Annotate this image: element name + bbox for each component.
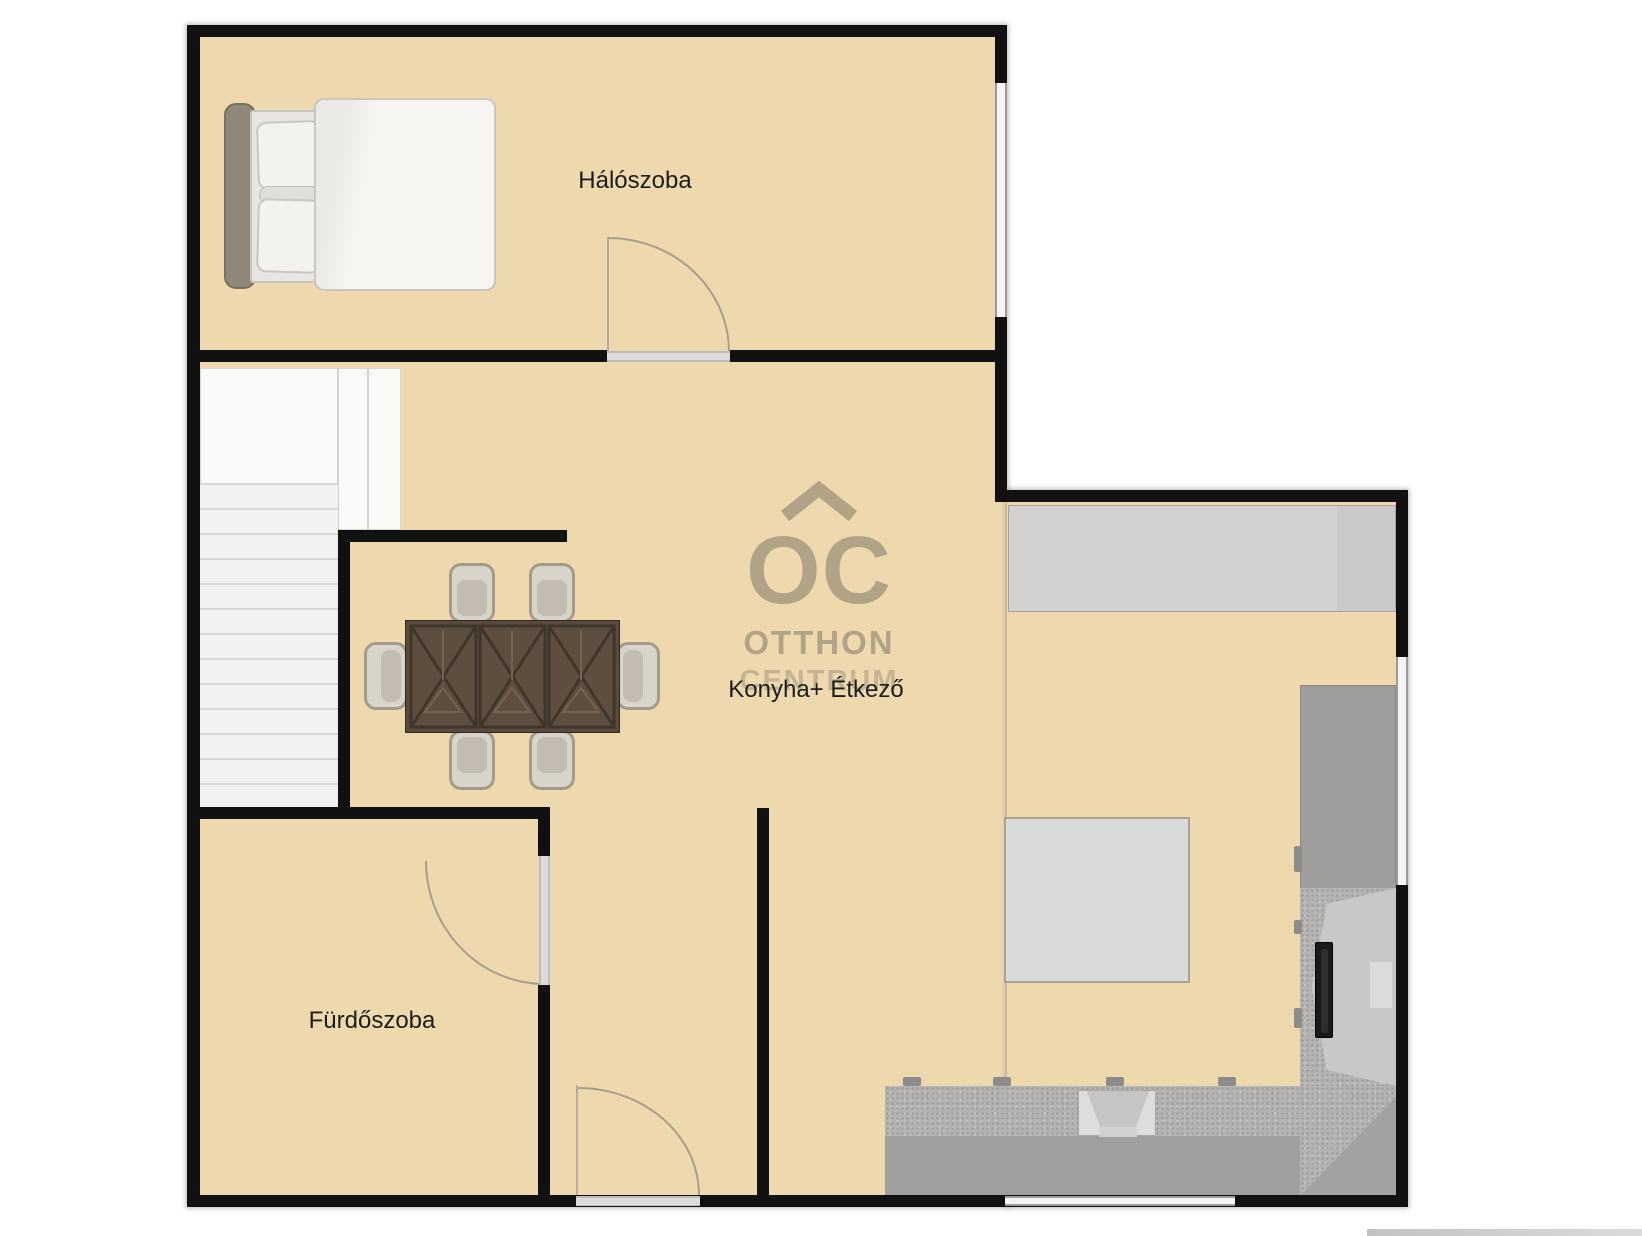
- dining-table-icon: [405, 620, 620, 733]
- watermark-letters: OC: [719, 524, 919, 618]
- kitchen-counter-corner: [1300, 1086, 1398, 1196]
- dining-chair: [449, 730, 495, 790]
- door-threshold-entry: [576, 1196, 700, 1206]
- wall-stairs: [338, 530, 350, 807]
- wall-bathroom-right: [538, 985, 550, 1207]
- watermark-line1: OTTHON: [719, 624, 919, 662]
- dining-chair: [364, 642, 408, 710]
- watermark-logo: OC OTTHON CENTRUM: [719, 480, 919, 698]
- window-kitchen-right: [1396, 657, 1408, 885]
- cabinet-handle: [1294, 1008, 1302, 1028]
- roof-chevron-icon: [777, 480, 861, 522]
- kitchen-counter-right-upper: [1300, 685, 1396, 889]
- room-label-kitchen-dining: Konyha+ Étkező: [691, 676, 941, 704]
- door-leaf-bathroom: [539, 856, 550, 985]
- wall-bedroom-bottom: [187, 350, 607, 362]
- counter-corner-shade: [1300, 1086, 1398, 1196]
- room-label-bathroom: Fürdőszoba: [272, 1007, 472, 1035]
- wall-partition-center: [757, 808, 769, 1207]
- room-label-bedroom: Hálószoba: [540, 167, 730, 195]
- floorplan-canvas: OC OTTHON CENTRUM Hálószoba Konyha+ Étke…: [0, 0, 1642, 1236]
- wall-stairs-stub: [338, 530, 567, 542]
- dining-chair: [449, 563, 495, 623]
- cabinet-highlight: [1370, 962, 1392, 1008]
- cabinet-handle: [1106, 1077, 1124, 1086]
- cabinet-handle: [1294, 920, 1302, 934]
- oven-icon: [1315, 942, 1333, 1038]
- dining-chair: [616, 642, 660, 710]
- wall-bedroom-bottom: [730, 350, 1007, 362]
- kitchen-counter-bottom-front: [885, 1136, 1300, 1196]
- bed-pillow: [256, 120, 322, 190]
- sink-icon: [1078, 1090, 1156, 1136]
- wall-bathroom-top: [187, 807, 550, 819]
- cabinet-handle: [1218, 1077, 1236, 1086]
- dining-chair: [529, 563, 575, 623]
- bed-duvet: [314, 98, 496, 291]
- kitchen-counter-top: [1008, 505, 1396, 612]
- cabinet-handle: [903, 1077, 921, 1086]
- door-threshold-bedroom: [607, 351, 730, 362]
- bottom-scroll-strip: [1367, 1229, 1642, 1236]
- staircase-icon: [200, 483, 338, 807]
- wall-outer-left: [187, 25, 200, 1207]
- window-bedroom: [995, 83, 1007, 317]
- wall-bathroom-right: [538, 807, 550, 856]
- cabinet-handle: [993, 1077, 1011, 1086]
- dining-chair: [529, 730, 575, 790]
- stair-landing-divider: [367, 369, 369, 529]
- wall-kitchen-top: [995, 490, 1408, 502]
- wall-outer-top: [187, 25, 1007, 37]
- window-kitchen-bottom: [1005, 1196, 1235, 1206]
- cabinet-handle: [1294, 846, 1302, 872]
- bed-pillow: [256, 198, 322, 274]
- rug: [1004, 817, 1190, 983]
